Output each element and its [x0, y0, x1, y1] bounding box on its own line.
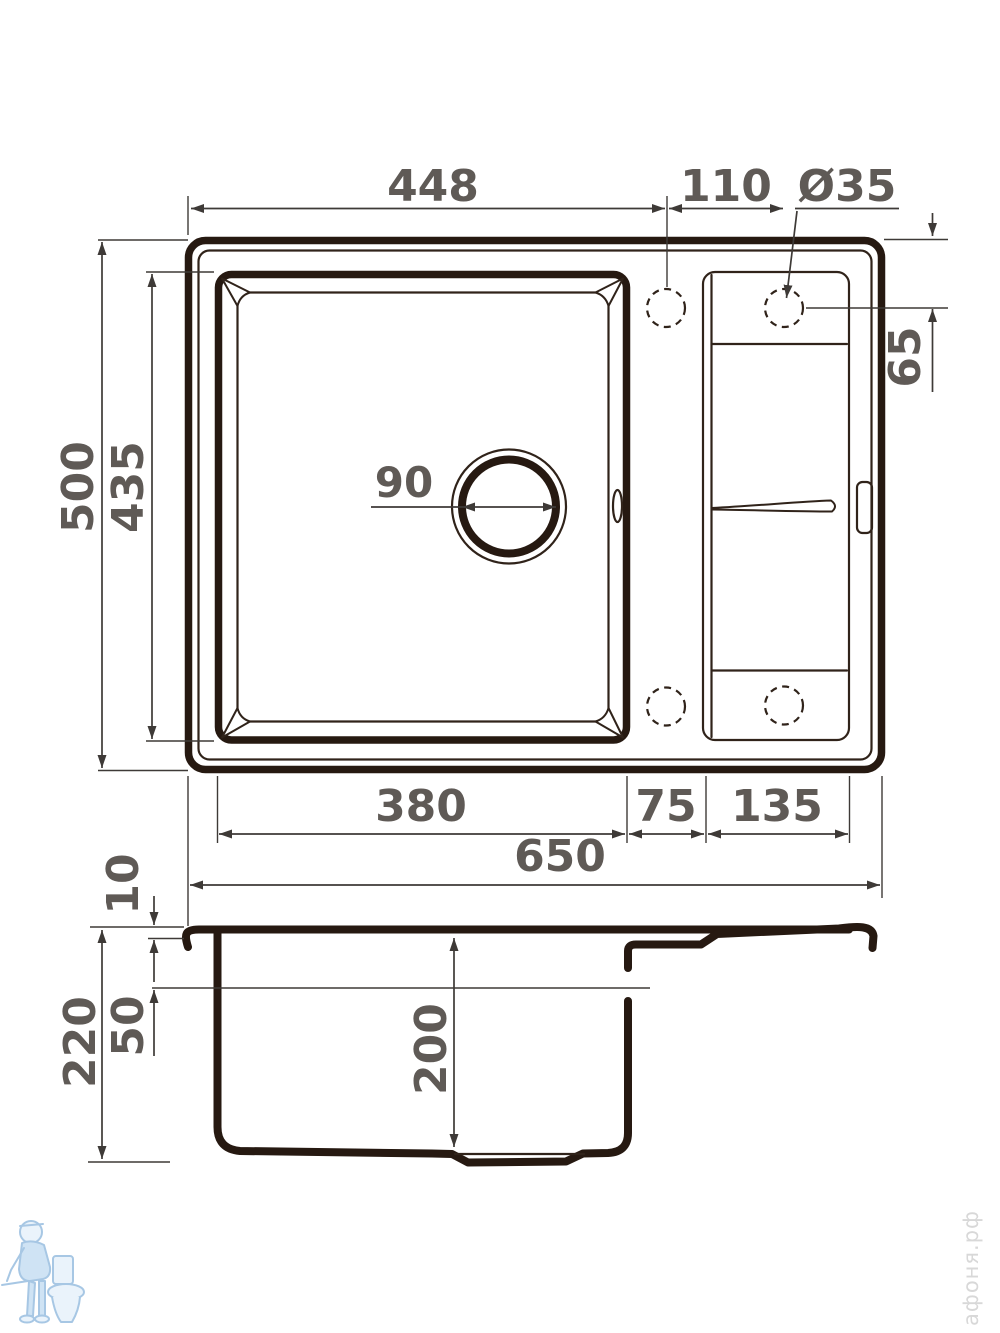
faucet-hole [765, 687, 803, 725]
toilet-tank [53, 1256, 73, 1284]
bowl-corner-facet [222, 279, 250, 307]
faucet-hole [647, 688, 685, 726]
dim-label-overall-height: 220 [55, 996, 106, 1088]
dim-label-hole-diameter: Ø35 [798, 161, 897, 212]
dim-label-rim-height: 10 [98, 853, 149, 914]
dim-label-hole-offset: 65 [880, 326, 931, 387]
plumber-watermark [2, 1221, 84, 1323]
bowl-corner-facet [222, 708, 250, 738]
plumber-leg [27, 1281, 35, 1316]
dim-label-bowl-depth: 200 [406, 1003, 457, 1095]
drawing-canvas: 448 110 Ø35 65 500 435 90 380 75 135 650 [0, 0, 1000, 1333]
top-view [189, 241, 882, 770]
drainboard [703, 272, 849, 740]
overflow-slot [613, 490, 622, 522]
rim-slot [857, 482, 872, 533]
dim-label-drain-diameter: 90 [375, 458, 433, 507]
dim-label-top-width: 448 [387, 161, 479, 212]
side-view-dimensions: 10 50 220 200 [55, 853, 457, 1162]
dim-label-hole-spacing: 110 [680, 161, 772, 212]
faucet-hole [647, 289, 685, 327]
dim-label-drainboard-depth: 50 [103, 995, 154, 1056]
faucet-hole [765, 289, 803, 327]
bowl-corner-facet [596, 279, 624, 307]
dim-label-ledge-width: 75 [635, 781, 696, 832]
drainboard-groove [712, 501, 835, 512]
dim-label-bowl-depth-plan: 435 [103, 441, 154, 533]
dim-label-bowl-width: 380 [375, 781, 467, 832]
side-view [152, 927, 874, 1163]
dim-label-drainboard-width: 135 [731, 781, 823, 832]
dim-label-overall-depth: 500 [53, 441, 104, 533]
toilet-base [52, 1297, 80, 1322]
dim-label-overall-width: 650 [514, 831, 606, 882]
bowl-corner-facet [596, 708, 624, 738]
bowl-inner-edge [222, 279, 623, 738]
watermark-site-label: афоня.рф [959, 1210, 983, 1326]
sink-technical-drawing: 448 110 Ø35 65 500 435 90 380 75 135 650 [0, 0, 1000, 1333]
plumber-leg [39, 1281, 45, 1316]
